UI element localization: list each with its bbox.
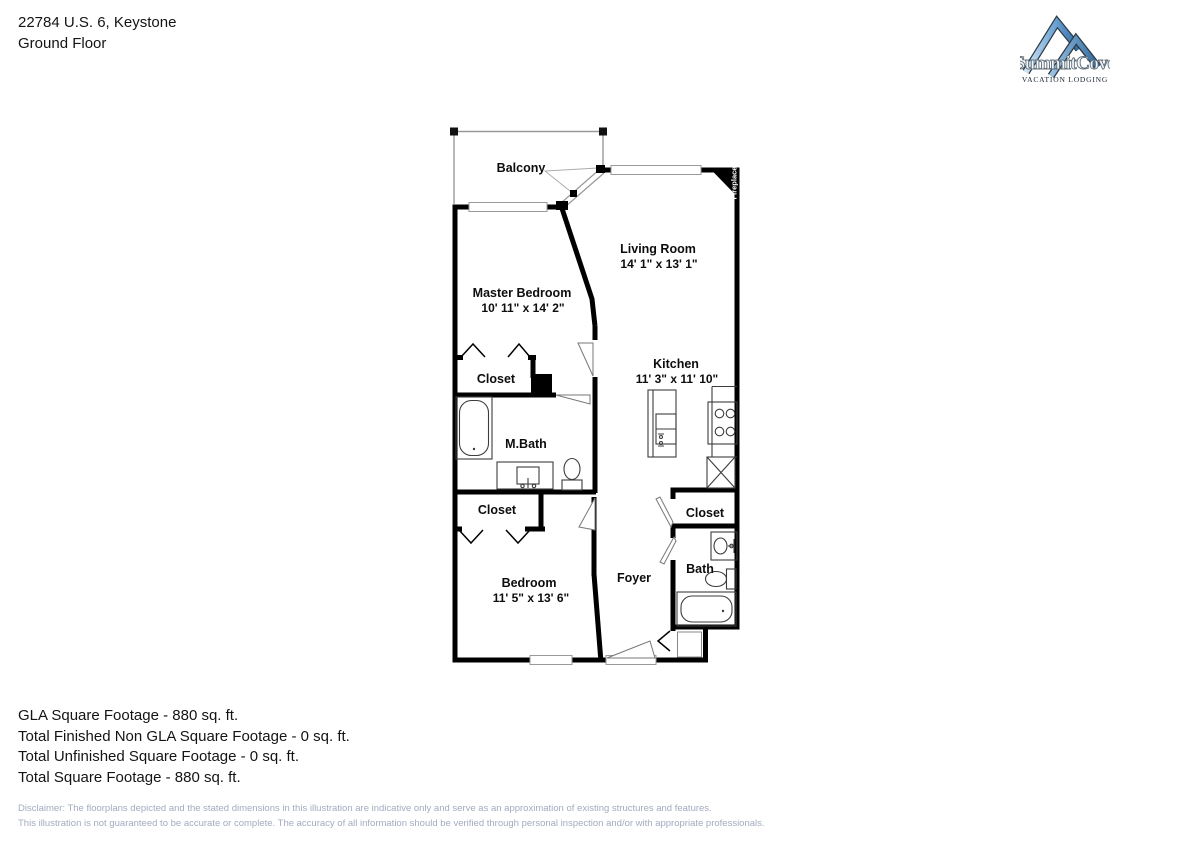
- walls: [453, 168, 740, 663]
- closet-door-icon: [658, 631, 670, 651]
- fireplace-label: Fireplace: [730, 167, 739, 200]
- window-icon: [469, 203, 547, 212]
- bifold-door-icon: [508, 344, 530, 357]
- room-labels: Balcony Living Room 14' 1" x 13' 1" Mast…: [473, 161, 725, 605]
- door-swing-icon: [579, 498, 595, 530]
- room-label-bedroom: Bedroom: [502, 576, 557, 590]
- window-icon: [530, 656, 572, 665]
- room-label-bedroom-closet: Closet: [478, 503, 517, 517]
- floorplan-page: 22784 U.S. 6, Keystone Ground Floor Summ…: [0, 0, 1200, 849]
- window-icon: [611, 166, 701, 175]
- door-swing-icon: [556, 395, 590, 404]
- kitchen-counter: [712, 387, 737, 458]
- square-footage-summary: GLA Square Footage - 880 sq. ft. Total F…: [18, 706, 350, 788]
- bathtub-icon: [677, 592, 736, 626]
- balcony-post-icon: [450, 128, 458, 136]
- summary-line: Total Finished Non GLA Square Footage - …: [18, 727, 350, 748]
- room-label-kitchen: Kitchen: [653, 357, 699, 371]
- room-label-master-bath: M.Bath: [505, 437, 547, 451]
- balcony-door-icon: [545, 165, 605, 210]
- room-label-foyer: Foyer: [617, 571, 651, 585]
- bifold-door-icon: [461, 344, 485, 357]
- disclaimer-line: Disclaimer: The floorplans depicted and …: [18, 801, 765, 816]
- room-label-balcony: Balcony: [497, 161, 546, 175]
- summary-line: Total Unfinished Square Footage - 0 sq. …: [18, 747, 350, 768]
- toilet-icon: [562, 459, 582, 491]
- room-label-living-room: Living Room: [620, 242, 696, 256]
- door-swing-icon: [656, 497, 673, 527]
- fireplace: Fireplace: [709, 167, 740, 200]
- summary-line: Total Square Footage - 880 sq. ft.: [18, 768, 350, 789]
- room-dims-living-room: 14' 1" x 13' 1": [620, 257, 697, 271]
- sink-icon: [497, 462, 553, 489]
- room-label-bath: Bath: [686, 562, 714, 576]
- balcony-post-icon: [599, 128, 607, 136]
- disclaimer-block: Disclaimer: The floorplans depicted and …: [18, 801, 765, 831]
- room-dims-master-bedroom: 10' 11" x 14' 2": [481, 301, 564, 315]
- room-label-master-bedroom: Master Bedroom: [473, 286, 572, 300]
- refrigerator-icon: [707, 457, 735, 488]
- room-dims-kitchen: 11' 3" x 11' 10": [636, 372, 719, 386]
- disclaimer-line: This illustration is not guaranteed to b…: [18, 816, 765, 831]
- summary-line: GLA Square Footage - 880 sq. ft.: [18, 706, 350, 727]
- bifold-door-icon: [459, 530, 483, 543]
- door-swing-icon: [660, 537, 676, 564]
- sink-icon: [711, 532, 737, 560]
- kitchen-island-sink-icon: [648, 390, 676, 457]
- entry-closet-inner: [678, 632, 702, 657]
- room-dims-bedroom: 11' 5" x 13' 6": [493, 591, 569, 605]
- room-label-hall-closet: Closet: [686, 506, 725, 520]
- kitchen-fixtures: [648, 387, 737, 489]
- entry-door-swing-icon: [607, 641, 655, 658]
- room-label-master-closet: Closet: [477, 372, 516, 386]
- bathtub-icon: [456, 397, 492, 459]
- bifold-door-icon: [506, 530, 530, 543]
- door-swing-icon: [578, 343, 593, 376]
